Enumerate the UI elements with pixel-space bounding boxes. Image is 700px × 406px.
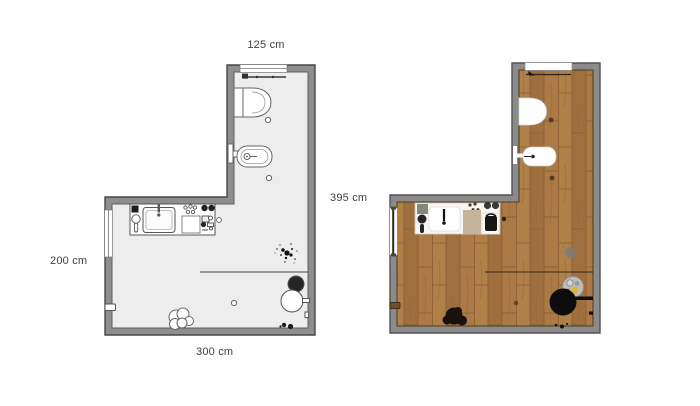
toilet [234,88,271,117]
door-stop [105,304,116,311]
floorplan-textured [390,63,600,333]
vanity-sink [415,202,506,234]
toilet [519,98,547,125]
door-stop [390,303,400,309]
dimension-label-right: 395 cm [330,192,367,204]
window-left [105,210,113,257]
floorplan-schematic [105,65,315,335]
dimension-label-left: 200 cm [50,255,87,267]
window-top [240,65,287,73]
vanity-sink [130,204,221,235]
window-left [390,207,398,257]
dimension-label-top: 125 cm [240,39,292,51]
dimension-label-bottom: 300 cm [196,346,233,358]
floorplanner-canvas: { "dimensions": { "top": "125 cm", "righ… [0,0,700,406]
